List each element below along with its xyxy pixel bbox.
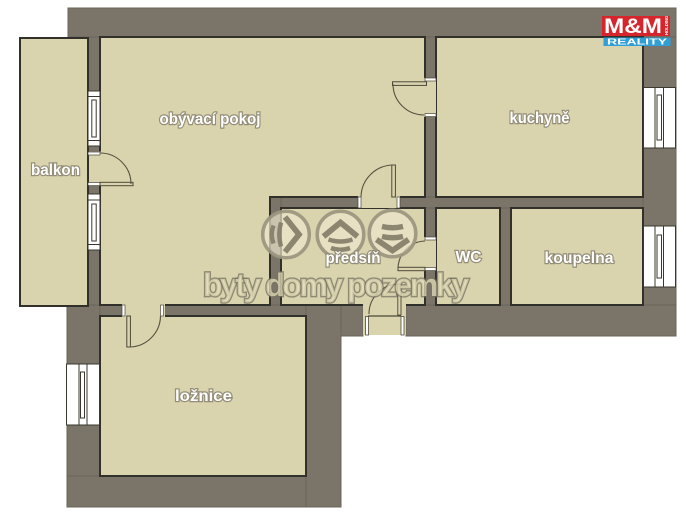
svg-text:koupelna: koupelna bbox=[545, 250, 614, 267]
svg-text:obývací pokoj: obývací pokoj bbox=[160, 111, 261, 128]
svg-text:M&M: M&M bbox=[604, 15, 662, 38]
svg-text:WC: WC bbox=[456, 249, 482, 266]
svg-text:předsíň: předsíň bbox=[326, 250, 381, 267]
svg-text:byty domy pozemky: byty domy pozemky bbox=[203, 267, 469, 303]
svg-text:HOLDING: HOLDING bbox=[664, 16, 669, 35]
svg-text:balkon: balkon bbox=[31, 162, 80, 179]
svg-text:ložnice: ložnice bbox=[175, 388, 232, 405]
svg-text:kuchyně: kuchyně bbox=[510, 110, 570, 127]
svg-text:REALITY: REALITY bbox=[607, 38, 668, 47]
